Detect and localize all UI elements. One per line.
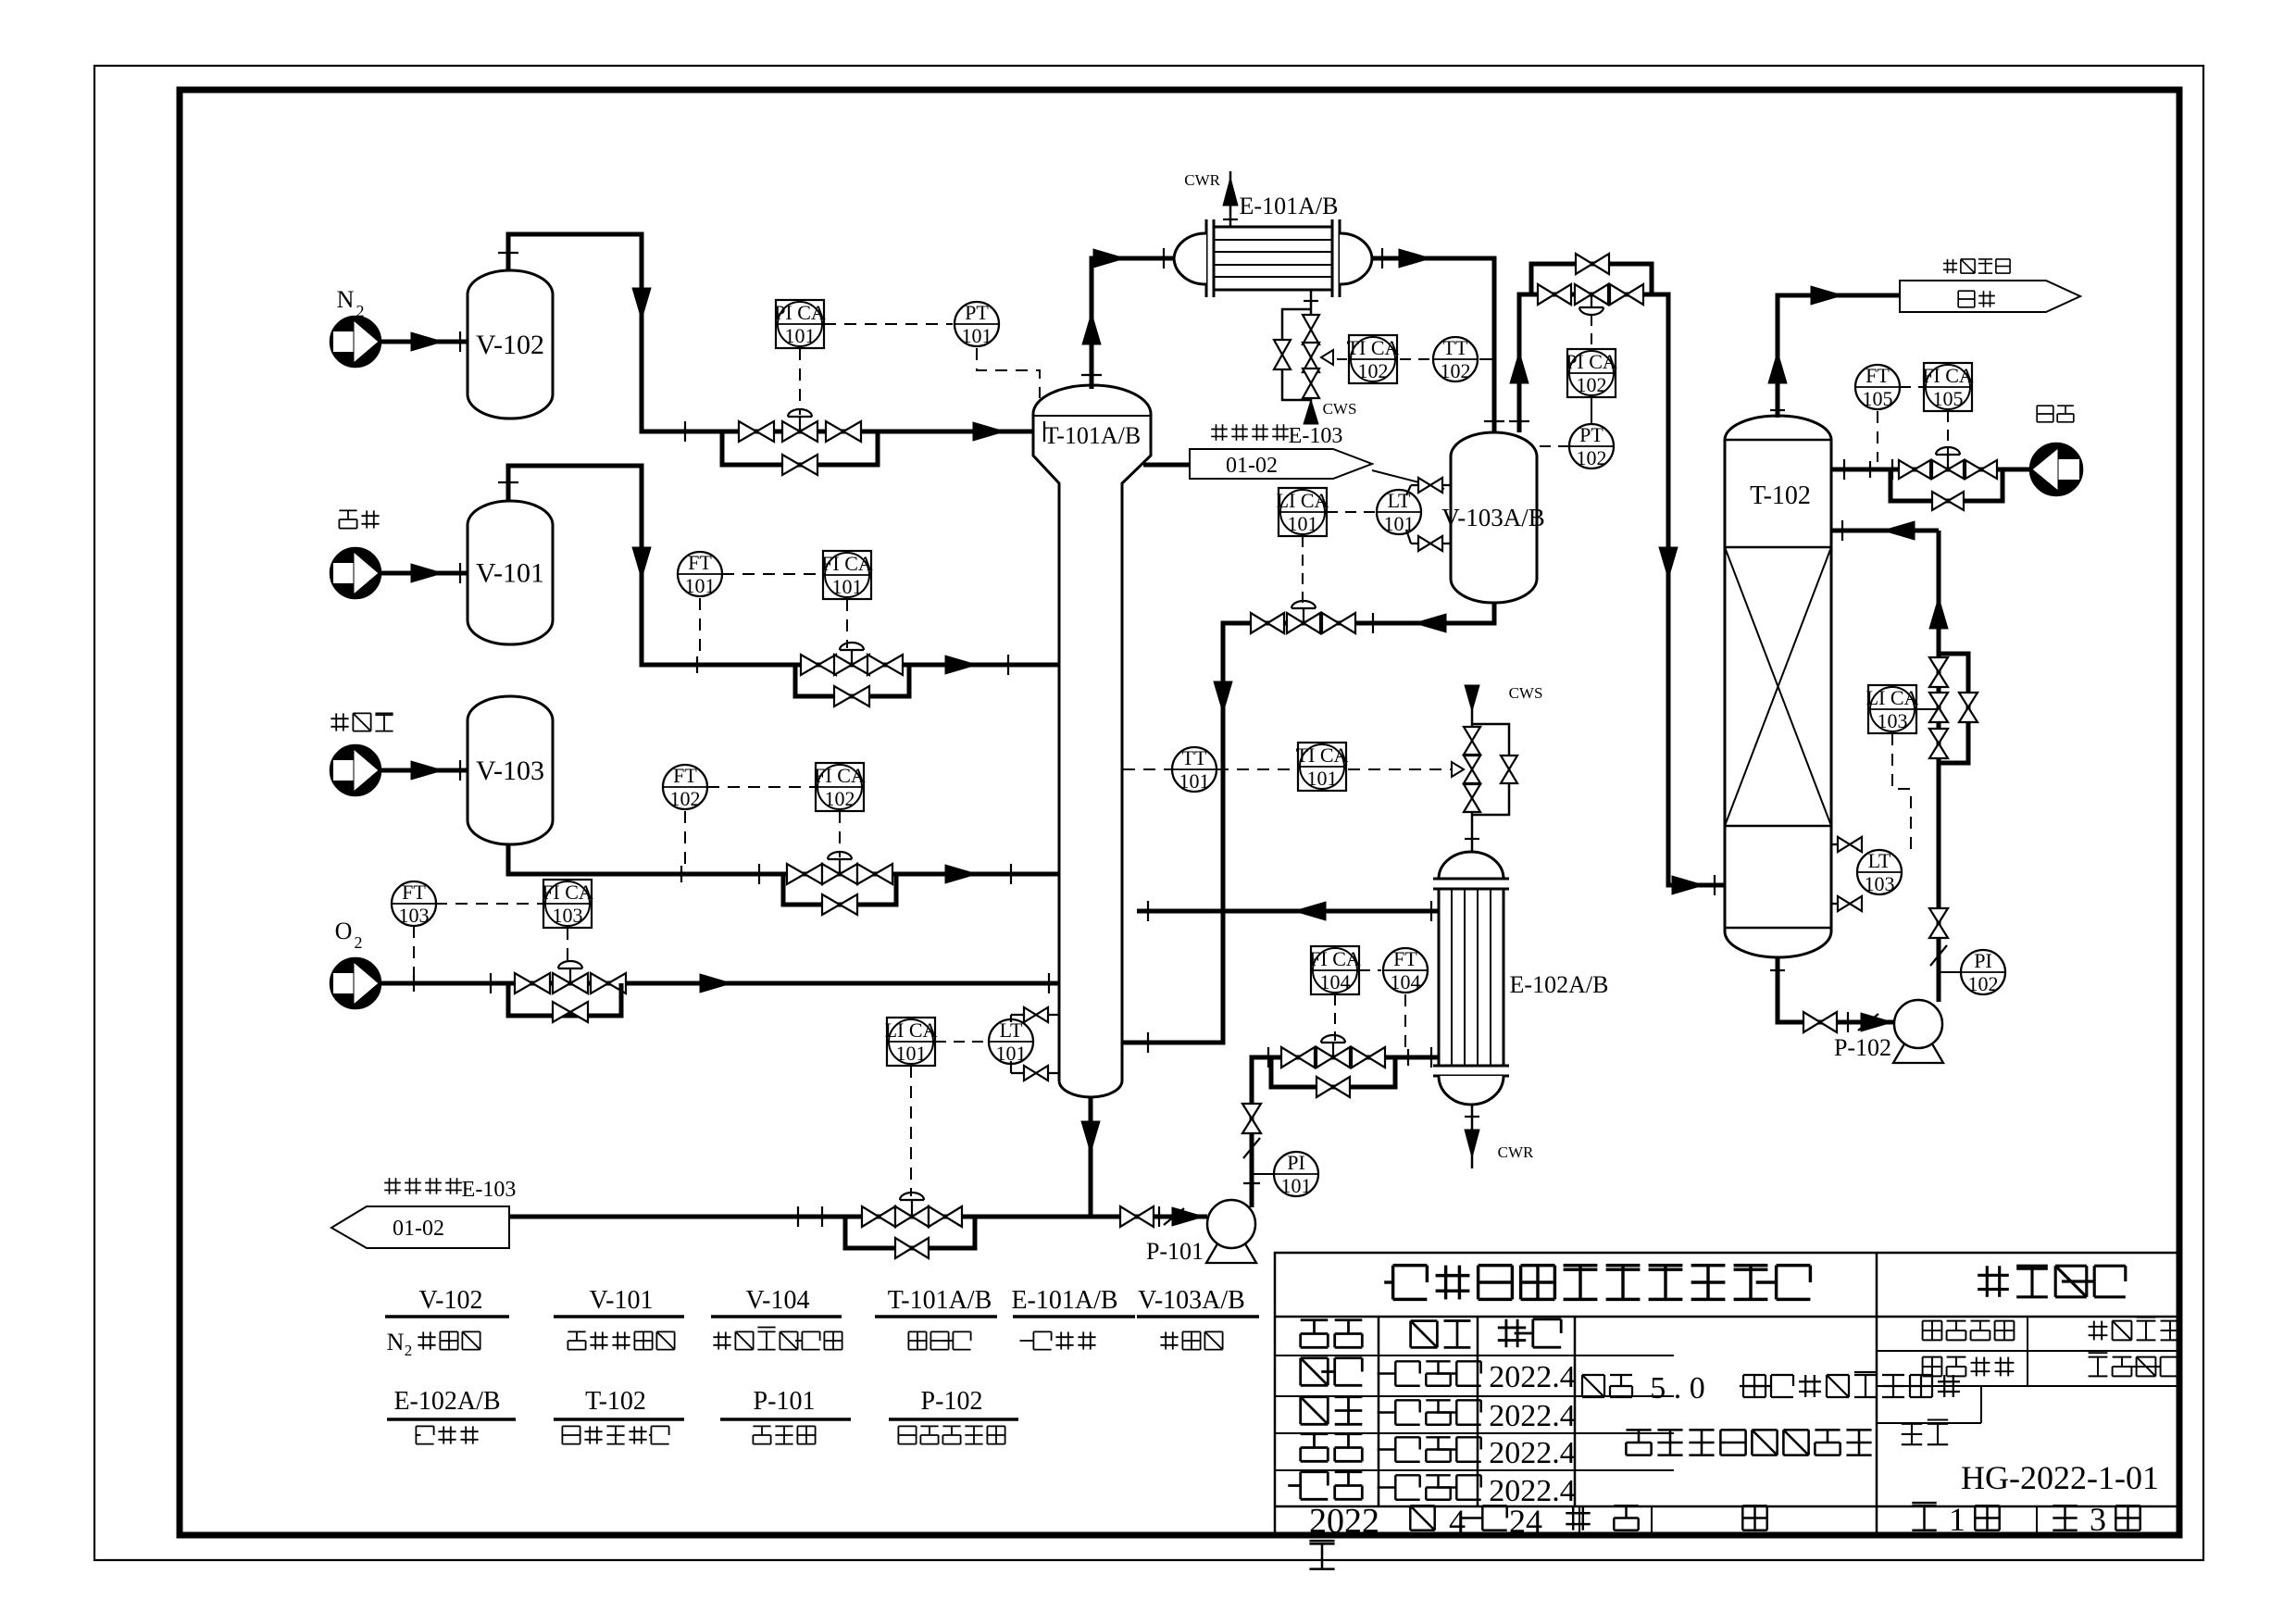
svg-text:101: 101 xyxy=(1281,1174,1312,1197)
svg-text:CWR: CWR xyxy=(1184,171,1220,189)
svg-text:CWS: CWS xyxy=(1509,684,1543,702)
svg-text:01-02: 01-02 xyxy=(393,1217,444,1241)
svg-text:FI CA: FI CA xyxy=(814,764,866,787)
svg-text:102: 102 xyxy=(670,787,701,810)
svg-text:T-102: T-102 xyxy=(585,1387,646,1416)
svg-text:2022.4: 2022.4 xyxy=(1489,1399,1576,1433)
svg-text:P-102: P-102 xyxy=(921,1387,983,1416)
svg-text:E-103: E-103 xyxy=(462,1178,517,1202)
svg-text:FI CA: FI CA xyxy=(542,881,593,904)
svg-text:E-101A/B: E-101A/B xyxy=(1240,193,1339,219)
svg-text:PI CA: PI CA xyxy=(774,301,826,324)
svg-text:105: 105 xyxy=(1863,387,1893,410)
svg-text:FT: FT xyxy=(1865,364,1890,387)
svg-text:104: 104 xyxy=(1320,970,1351,993)
svg-text:LI CA: LI CA xyxy=(885,1018,938,1042)
svg-text:3: 3 xyxy=(2090,1501,2106,1538)
svg-text:104: 104 xyxy=(1391,970,1421,993)
svg-text:TI CA: TI CA xyxy=(1347,336,1400,359)
svg-text:HG-2022-1-01: HG-2022-1-01 xyxy=(1961,1459,2159,1496)
svg-text:PI: PI xyxy=(1974,949,1992,972)
svg-text:4: 4 xyxy=(1449,1503,1466,1540)
svg-text:101: 101 xyxy=(962,324,992,347)
svg-text:2022.4: 2022.4 xyxy=(1489,1360,1576,1394)
svg-text:2022.4: 2022.4 xyxy=(1489,1436,1576,1470)
svg-text:T-102: T-102 xyxy=(1750,481,1811,510)
svg-text:FT: FT xyxy=(1393,947,1417,970)
svg-text:101: 101 xyxy=(1288,512,1318,535)
svg-text:2022: 2022 xyxy=(1309,1502,1379,1541)
svg-text:103: 103 xyxy=(1865,872,1895,895)
svg-text:101: 101 xyxy=(896,1042,927,1065)
svg-text:24: 24 xyxy=(1509,1503,1542,1540)
svg-text:102: 102 xyxy=(1577,446,1607,469)
svg-text:T-101A/B: T-101A/B xyxy=(1044,422,1142,449)
svg-text:2: 2 xyxy=(356,302,365,320)
svg-text:V-103: V-103 xyxy=(476,756,544,786)
svg-text:E-101A/B: E-101A/B xyxy=(1011,1286,1117,1315)
svg-text:102: 102 xyxy=(1358,359,1389,382)
svg-text:LI CA: LI CA xyxy=(1866,686,1919,709)
svg-text:V-104: V-104 xyxy=(746,1286,810,1315)
svg-text:102: 102 xyxy=(1577,373,1607,396)
svg-text:CWR: CWR xyxy=(1498,1143,1534,1161)
svg-text:TT: TT xyxy=(1443,336,1468,359)
svg-text:V-102: V-102 xyxy=(419,1286,483,1315)
svg-text:V-101: V-101 xyxy=(590,1286,654,1315)
svg-text:1: 1 xyxy=(1949,1501,1965,1538)
svg-text:E-102A/B: E-102A/B xyxy=(393,1387,500,1416)
svg-text:P-101: P-101 xyxy=(754,1387,816,1416)
svg-text:P-101: P-101 xyxy=(1146,1238,1204,1265)
svg-text:PT: PT xyxy=(965,301,989,324)
svg-text:101: 101 xyxy=(832,575,863,598)
svg-text:V-103A/B: V-103A/B xyxy=(1138,1286,1245,1315)
svg-text:2: 2 xyxy=(355,933,363,952)
svg-text:102: 102 xyxy=(1968,972,1999,995)
svg-text:01-02: 01-02 xyxy=(1226,454,1278,478)
svg-text:PT: PT xyxy=(1579,423,1603,446)
svg-text:105: 105 xyxy=(1933,387,1964,410)
svg-text:CWS: CWS xyxy=(1323,400,1357,418)
svg-text:TI CA: TI CA xyxy=(1296,743,1349,767)
svg-text:101: 101 xyxy=(1384,512,1415,535)
svg-text:FT: FT xyxy=(688,551,712,574)
svg-text:PI CA: PI CA xyxy=(1566,350,1617,373)
svg-text:2: 2 xyxy=(405,1342,413,1359)
svg-text:102: 102 xyxy=(1441,359,1471,382)
svg-text:LT: LT xyxy=(1868,849,1891,872)
svg-text:5 . 0: 5 . 0 xyxy=(1650,1371,1705,1405)
svg-text:101: 101 xyxy=(1307,767,1338,790)
svg-text:V-101: V-101 xyxy=(476,558,544,589)
svg-text:O: O xyxy=(335,918,353,944)
svg-text:101: 101 xyxy=(785,324,816,347)
svg-text:102: 102 xyxy=(825,787,855,810)
svg-text:N: N xyxy=(337,286,355,313)
svg-text:101: 101 xyxy=(685,574,716,597)
svg-text:103: 103 xyxy=(399,904,430,927)
svg-text:V-102: V-102 xyxy=(476,330,544,360)
svg-text:101: 101 xyxy=(1179,769,1210,793)
svg-text:103: 103 xyxy=(1878,709,1908,732)
svg-text:V-103A/B: V-103A/B xyxy=(1441,504,1545,531)
svg-text:103: 103 xyxy=(553,904,583,927)
svg-text:N: N xyxy=(387,1329,405,1355)
svg-text:P-102: P-102 xyxy=(1834,1034,1891,1061)
svg-text:FT: FT xyxy=(673,764,697,787)
svg-text:FI CA: FI CA xyxy=(1922,364,1974,387)
svg-text:PI: PI xyxy=(1287,1151,1305,1174)
svg-text:LI CA: LI CA xyxy=(1277,489,1329,512)
svg-text:T-101A/B: T-101A/B xyxy=(888,1286,992,1315)
svg-text:FI CA: FI CA xyxy=(1309,947,1361,970)
svg-text:FT: FT xyxy=(402,881,426,904)
svg-text:E-102A/B: E-102A/B xyxy=(1510,971,1609,998)
svg-text:TT: TT xyxy=(1182,746,1207,769)
svg-text:FI CA: FI CA xyxy=(821,552,873,575)
svg-text:E-103: E-103 xyxy=(1289,424,1343,448)
